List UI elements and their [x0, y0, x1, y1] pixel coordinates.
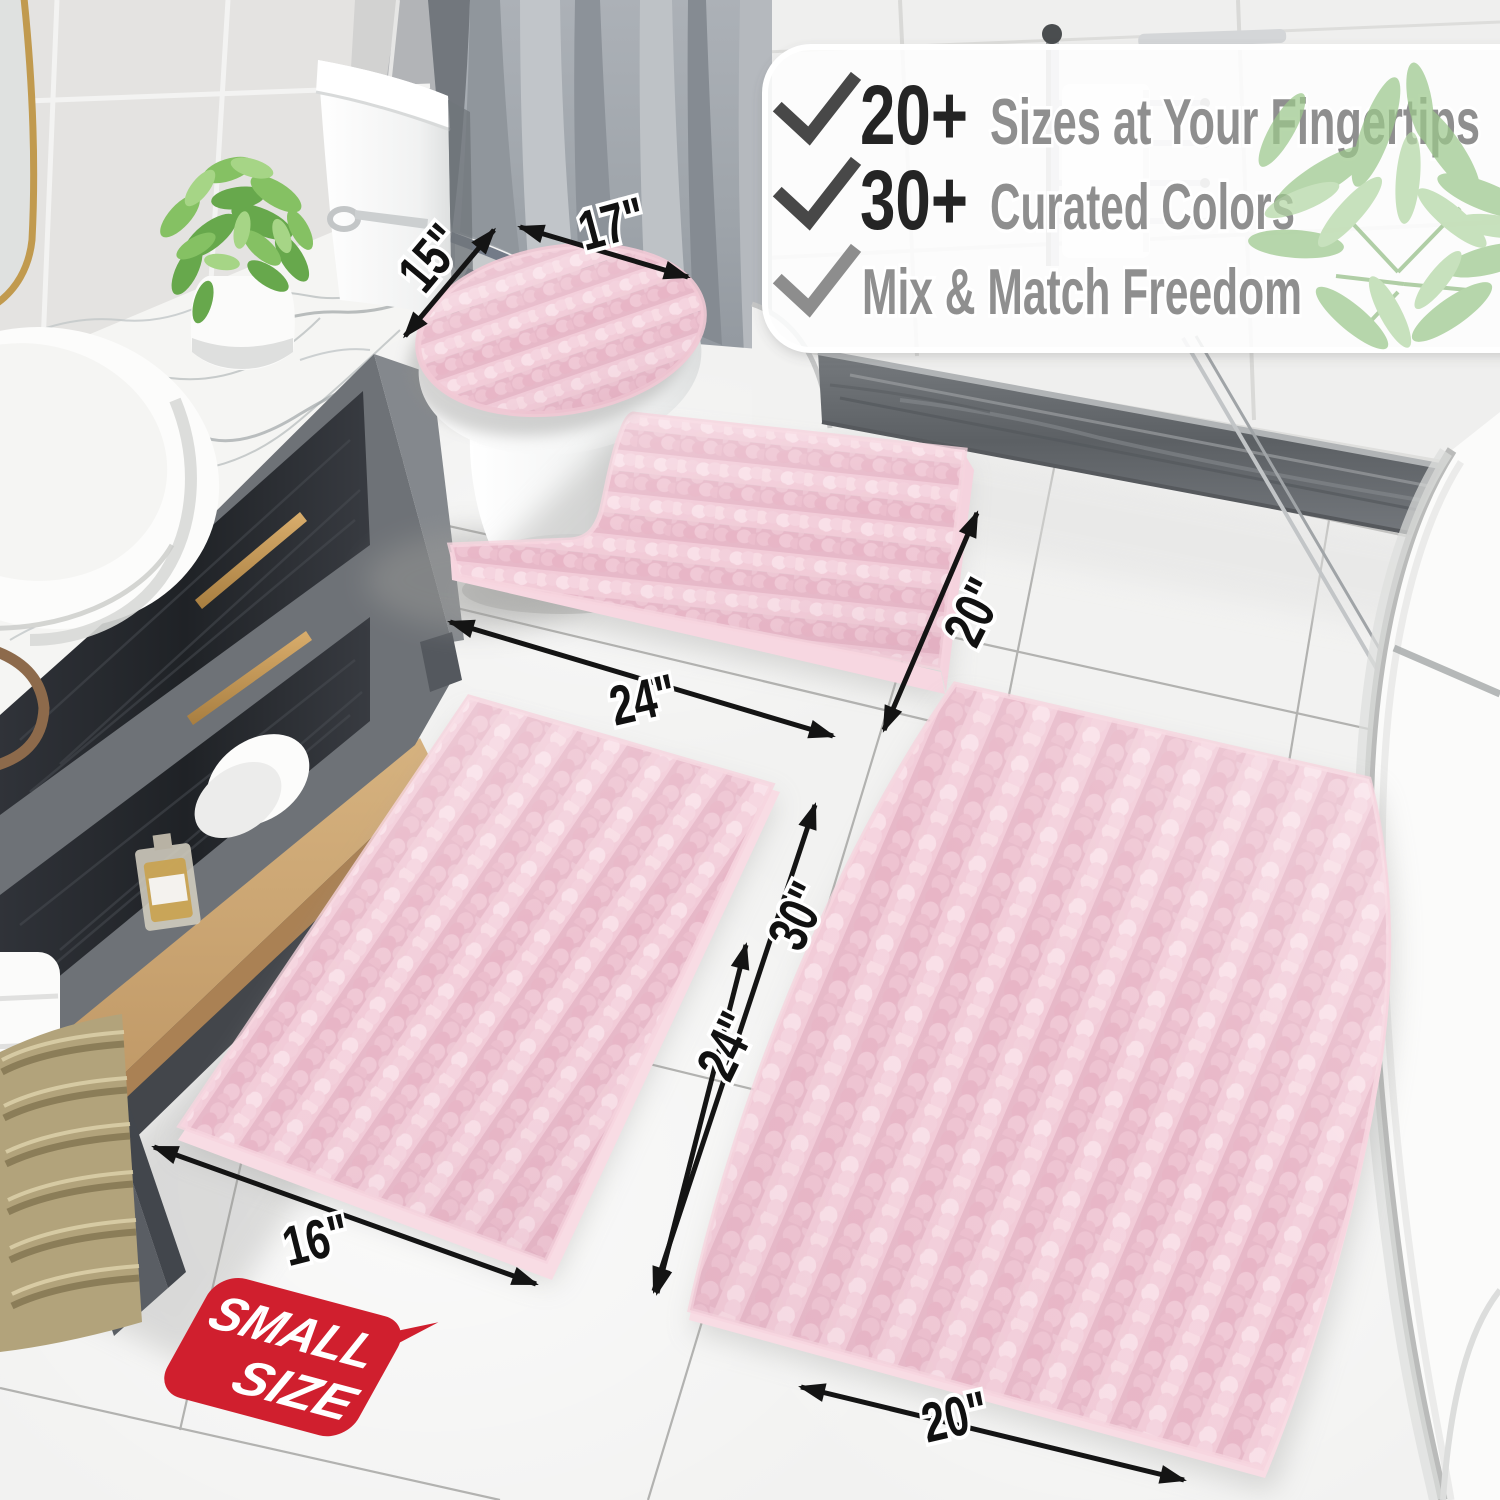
svg-text:Mix & Match Freedom: Mix & Match Freedom	[862, 255, 1302, 328]
svg-text:30+: 30+	[860, 153, 968, 247]
svg-text:Curated Colors: Curated Colors	[990, 170, 1295, 243]
svg-text:20+: 20+	[860, 68, 968, 162]
